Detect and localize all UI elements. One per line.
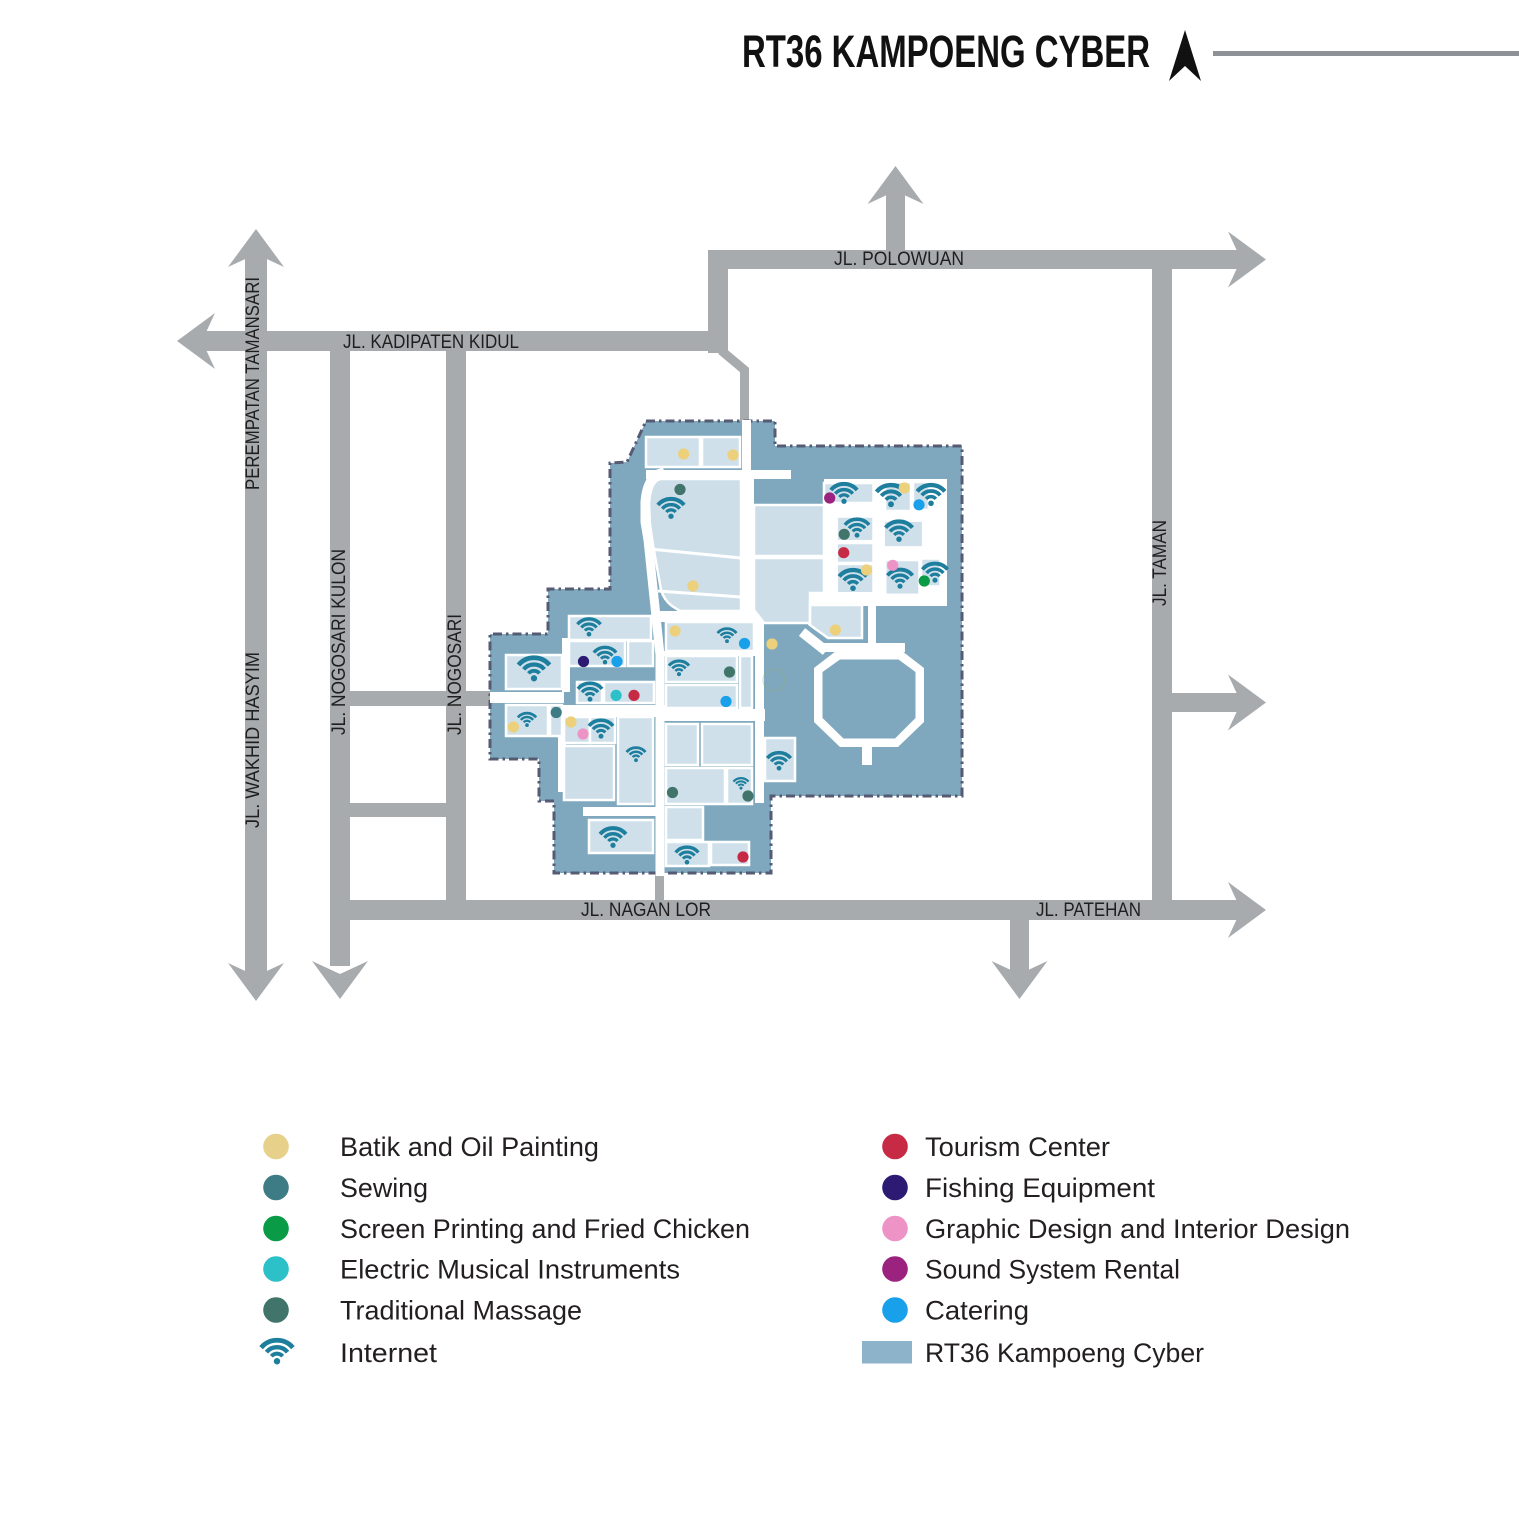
svg-text:Fishing Equipment: Fishing Equipment bbox=[925, 1173, 1156, 1203]
svg-text:JL. NAGAN LOR: JL. NAGAN LOR bbox=[581, 900, 711, 921]
svg-text:Graphic Design and Interior De: Graphic Design and Interior Design bbox=[925, 1214, 1350, 1244]
svg-text:JL. KADIPATEN KIDUL: JL. KADIPATEN KIDUL bbox=[343, 332, 519, 353]
svg-text:JL. PATEHAN: JL. PATEHAN bbox=[1036, 900, 1141, 921]
svg-text:JL. WAKHID HASYIM: JL. WAKHID HASYIM bbox=[243, 652, 264, 828]
svg-text:Sound System Rental: Sound System Rental bbox=[925, 1255, 1180, 1285]
svg-text:Internet: Internet bbox=[340, 1338, 438, 1368]
svg-text:Batik and Oil Painting: Batik and Oil Painting bbox=[340, 1132, 599, 1162]
svg-text:Catering: Catering bbox=[925, 1296, 1029, 1326]
svg-text:JL. NOGOSARI: JL. NOGOSARI bbox=[445, 614, 466, 735]
svg-text:Electric Musical Instruments: Electric Musical Instruments bbox=[340, 1255, 680, 1285]
svg-text:RT36 KAMPOENG CYBER: RT36 KAMPOENG CYBER bbox=[742, 26, 1150, 77]
svg-text:Tourism Center: Tourism Center bbox=[925, 1132, 1110, 1162]
svg-text:Traditional Massage: Traditional Massage bbox=[340, 1296, 582, 1326]
svg-text:RT36 Kampoeng Cyber: RT36 Kampoeng Cyber bbox=[925, 1338, 1204, 1368]
svg-text:JL. POLOWUAN: JL. POLOWUAN bbox=[834, 249, 964, 270]
svg-text:Sewing: Sewing bbox=[340, 1173, 428, 1203]
svg-text:PEREMPATAN TAMANSARI: PEREMPATAN TAMANSARI bbox=[243, 277, 264, 490]
svg-text:JL. TAMAN: JL. TAMAN bbox=[1150, 520, 1171, 606]
svg-text:Screen Printing and Fried Chic: Screen Printing and Fried Chicken bbox=[340, 1214, 750, 1244]
svg-text:JL. NOGOSARI KULON: JL. NOGOSARI KULON bbox=[329, 549, 350, 735]
